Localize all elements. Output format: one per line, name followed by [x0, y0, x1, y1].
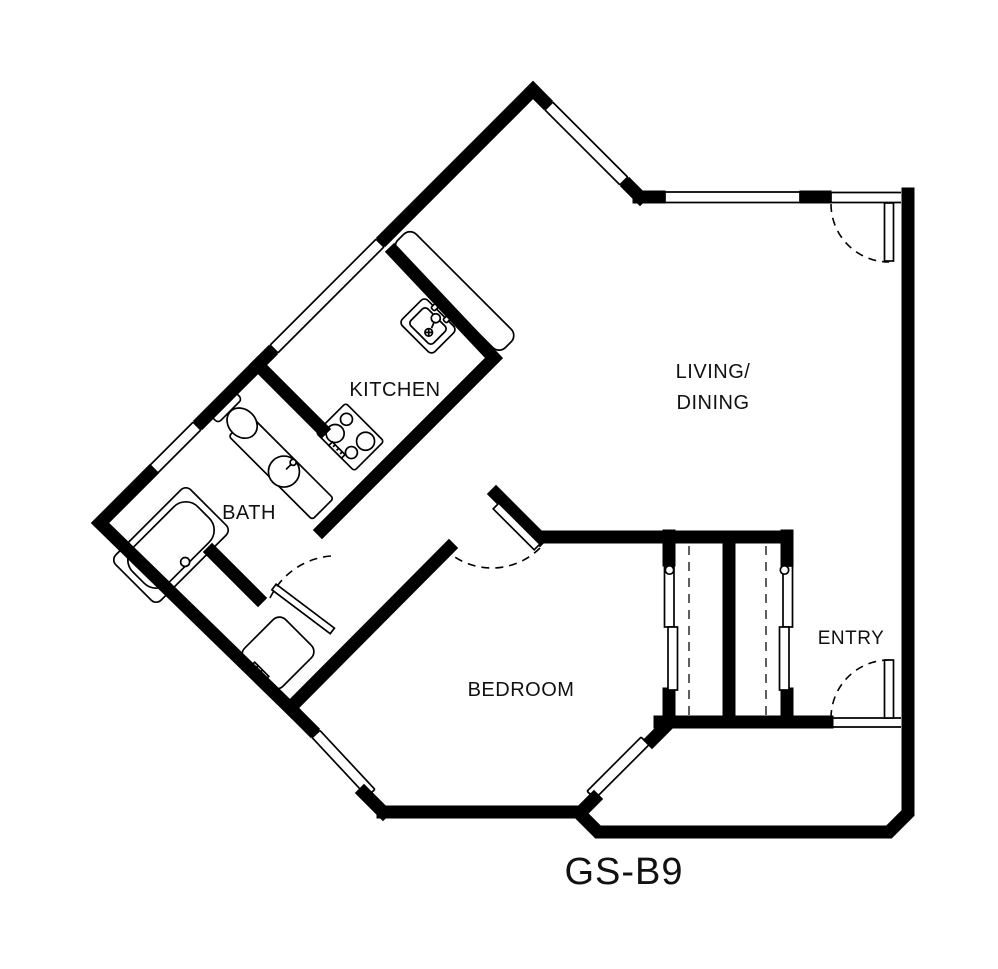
- door-leaf: [885, 660, 894, 718]
- closet-door-panel: [780, 627, 790, 690]
- entry-label: ENTRY: [818, 628, 885, 649]
- fixtures: [111, 228, 518, 693]
- bedroom-se-stub-lower: [583, 799, 594, 810]
- closet-door-panel: [665, 566, 675, 627]
- door-swing-arc: [831, 660, 889, 718]
- exterior-wall-nw-upper: [385, 90, 533, 238]
- sill-entry-door: [832, 718, 901, 727]
- washer-icon: [238, 613, 317, 692]
- apex-wall-stub-upper: [533, 90, 544, 101]
- plan-code-label: GS-B9: [564, 851, 683, 893]
- window-bedroom-se: [587, 737, 649, 799]
- closet-door-panel: [668, 627, 678, 690]
- closet-door-pivot: [780, 566, 788, 574]
- window-apex: [545, 102, 628, 185]
- door-swing-arc: [448, 548, 540, 568]
- door-top-right: [831, 203, 894, 262]
- walls: [100, 90, 908, 832]
- door-leaf: [885, 203, 894, 261]
- closet-door-pivot: [665, 566, 673, 574]
- bath-nook-divider: [212, 552, 258, 598]
- closet-door-panel: [783, 566, 793, 627]
- living-dining-label-line1: LIVING/: [676, 361, 751, 383]
- living-dining-label-line2: DINING: [677, 392, 750, 414]
- range-icon: [316, 403, 384, 471]
- door-bedroom: [448, 503, 540, 568]
- kitchen-label: KITCHEN: [349, 379, 440, 401]
- window-top: [665, 192, 800, 203]
- bedroom-door-wall-lower: [292, 548, 449, 706]
- door-entry: [831, 660, 894, 718]
- kitchen-bath-divider: [258, 365, 322, 429]
- floor-plan-svg: LIVING/ DINING KITCHEN BATH BEDROOM ENTR…: [0, 0, 998, 969]
- bedroom-sw-stub-upper: [292, 710, 311, 729]
- bath-label: BATH: [222, 502, 276, 524]
- floor-plan-page: LIVING/ DINING KITCHEN BATH BEDROOM ENTR…: [0, 0, 998, 969]
- window-kitchen: [270, 239, 384, 353]
- bedroom-label: BEDROOM: [468, 679, 575, 701]
- door-swing-arc: [831, 204, 889, 262]
- bedroom-se-stub-upper: [652, 728, 664, 740]
- sill-top-right-door: [831, 193, 901, 203]
